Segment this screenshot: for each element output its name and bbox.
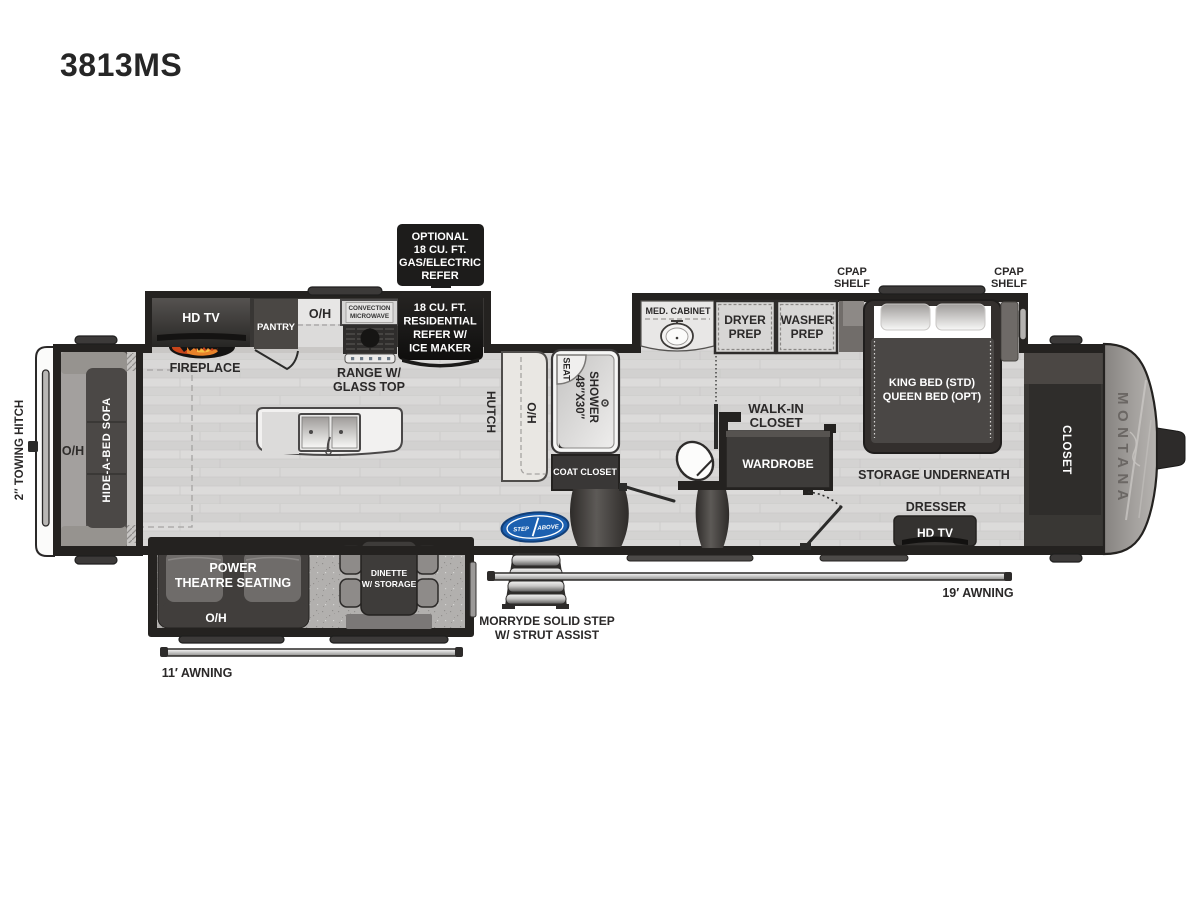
svg-text:PANTRY: PANTRY xyxy=(257,322,296,333)
svg-text:PREP: PREP xyxy=(729,327,762,341)
svg-text:ICE MAKER: ICE MAKER xyxy=(409,343,471,355)
svg-text:OPTIONAL: OPTIONAL xyxy=(412,231,469,243)
svg-text:MORRYDE SOLID STEP: MORRYDE SOLID STEP xyxy=(479,614,615,628)
svg-text:WARDROBE: WARDROBE xyxy=(742,457,813,471)
svg-text:POWER: POWER xyxy=(209,561,256,575)
svg-text:SEAT: SEAT xyxy=(562,357,572,381)
svg-text:KING BED (STD): KING BED (STD) xyxy=(889,377,976,389)
svg-text:CLOSET: CLOSET xyxy=(1060,425,1072,475)
svg-text:FIREPLACE: FIREPLACE xyxy=(170,361,241,375)
svg-text:DINETTE: DINETTE xyxy=(371,568,408,578)
svg-text:SHOWER: SHOWER xyxy=(587,371,599,423)
svg-text:3813MS: 3813MS xyxy=(60,47,182,83)
svg-text:STEP: STEP xyxy=(513,526,530,533)
svg-text:CLOSET: CLOSET xyxy=(750,415,803,430)
svg-text:18 CU. FT.: 18 CU. FT. xyxy=(414,244,467,256)
svg-text:11′ AWNING: 11′ AWNING xyxy=(162,666,233,680)
svg-text:O/H: O/H xyxy=(62,444,84,458)
svg-text:PREP: PREP xyxy=(791,327,824,341)
svg-text:WASHER: WASHER xyxy=(781,313,834,327)
svg-text:HD TV: HD TV xyxy=(182,311,220,325)
svg-text:MED. CABINET: MED. CABINET xyxy=(646,306,712,316)
svg-text:HUTCH: HUTCH xyxy=(484,391,498,433)
svg-text:RESIDENTIAL: RESIDENTIAL xyxy=(403,316,477,328)
svg-text:QUEEN BED (OPT): QUEEN BED (OPT) xyxy=(883,391,982,403)
svg-text:CONVECTION: CONVECTION xyxy=(349,305,391,312)
svg-text:O/H: O/H xyxy=(205,611,226,625)
svg-text:WALK-IN: WALK-IN xyxy=(748,401,804,416)
svg-text:REFER W/: REFER W/ xyxy=(413,329,467,341)
svg-text:H/O: H/O xyxy=(525,402,539,423)
svg-text:48″X30″: 48″X30″ xyxy=(573,375,585,420)
svg-text:REFER: REFER xyxy=(421,270,458,282)
svg-text:SHELF: SHELF xyxy=(834,278,870,290)
svg-text:DRESSER: DRESSER xyxy=(906,500,966,514)
svg-text:GLASS TOP: GLASS TOP xyxy=(333,380,405,394)
svg-text:W/ STRUT ASSIST: W/ STRUT ASSIST xyxy=(495,628,600,642)
svg-text:MICROWAVE: MICROWAVE xyxy=(350,313,389,320)
svg-text:MONTANA: MONTANA xyxy=(1114,392,1131,506)
svg-text:HIDE-A-BED SOFA: HIDE-A-BED SOFA xyxy=(101,397,113,502)
svg-text:CPAP: CPAP xyxy=(994,266,1024,278)
svg-text:GAS/ELECTRIC: GAS/ELECTRIC xyxy=(399,257,481,269)
svg-text:19′ AWNING: 19′ AWNING xyxy=(942,586,1013,600)
svg-text:DRYER: DRYER xyxy=(724,313,766,327)
svg-text:2″ TOWING HITCH: 2″ TOWING HITCH xyxy=(14,400,26,501)
svg-text:STORAGE UNDERNEATH: STORAGE UNDERNEATH xyxy=(858,468,1010,482)
svg-text:O/H: O/H xyxy=(309,307,331,321)
svg-text:18 CU. FT.: 18 CU. FT. xyxy=(414,302,467,314)
svg-text:SHELF: SHELF xyxy=(991,278,1027,290)
svg-text:THEATRE SEATING: THEATRE SEATING xyxy=(175,576,291,590)
svg-text:CPAP: CPAP xyxy=(837,266,867,278)
svg-text:W/ STORAGE: W/ STORAGE xyxy=(362,579,417,589)
svg-text:COAT CLOSET: COAT CLOSET xyxy=(553,467,617,477)
svg-text:RANGE W/: RANGE W/ xyxy=(337,366,401,380)
